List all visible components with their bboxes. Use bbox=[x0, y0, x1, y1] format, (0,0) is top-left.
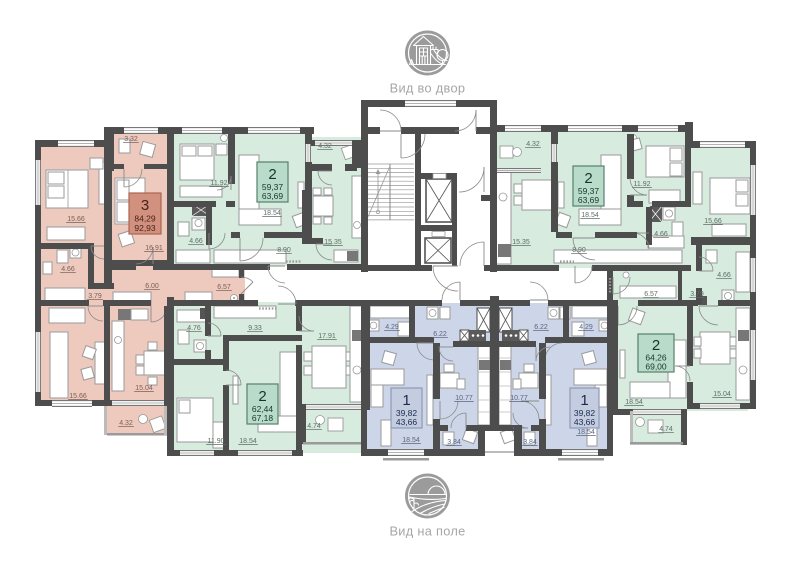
svg-text:11.90: 11.90 bbox=[208, 438, 225, 445]
svg-text:6.00: 6.00 bbox=[145, 283, 159, 290]
svg-text:15.35: 15.35 bbox=[324, 239, 342, 246]
svg-text:3.79: 3.79 bbox=[88, 293, 102, 300]
svg-text:43,66: 43,66 bbox=[396, 417, 418, 427]
svg-text:4.29: 4.29 bbox=[579, 324, 593, 331]
svg-text:4.66: 4.66 bbox=[654, 231, 668, 238]
svg-text:15.66: 15.66 bbox=[69, 393, 87, 400]
svg-text:4.66: 4.66 bbox=[189, 238, 203, 245]
svg-text:1: 1 bbox=[402, 392, 410, 409]
svg-text:92,93: 92,93 bbox=[134, 223, 156, 233]
svg-text:2: 2 bbox=[584, 170, 592, 187]
svg-text:3.84: 3.84 bbox=[447, 439, 461, 446]
svg-text:4.76: 4.76 bbox=[187, 325, 201, 332]
svg-text:4.29: 4.29 bbox=[385, 324, 399, 331]
svg-text:16.91: 16.91 bbox=[145, 245, 163, 252]
svg-text:10.77: 10.77 bbox=[510, 395, 528, 402]
svg-text:10.77: 10.77 bbox=[455, 395, 473, 402]
svg-text:15.04: 15.04 bbox=[135, 385, 153, 392]
svg-text:18.54: 18.54 bbox=[577, 429, 595, 436]
svg-text:43,66: 43,66 bbox=[574, 417, 596, 427]
svg-text:11.92: 11.92 bbox=[211, 180, 228, 187]
svg-text:3.79: 3.79 bbox=[690, 291, 704, 298]
svg-text:4.66: 4.66 bbox=[61, 266, 75, 273]
svg-text:63,69: 63,69 bbox=[262, 191, 284, 201]
svg-text:3: 3 bbox=[141, 197, 149, 214]
svg-text:8.90: 8.90 bbox=[277, 247, 291, 254]
svg-text:2: 2 bbox=[268, 166, 276, 183]
svg-text:4.74: 4.74 bbox=[659, 426, 673, 433]
svg-text:4.66: 4.66 bbox=[717, 272, 731, 279]
svg-text:18.54: 18.54 bbox=[263, 210, 281, 217]
svg-text:4.32: 4.32 bbox=[318, 143, 332, 150]
svg-text:18.54: 18.54 bbox=[625, 399, 643, 406]
svg-text:1: 1 bbox=[580, 392, 588, 409]
svg-text:69,00: 69,00 bbox=[645, 361, 667, 371]
svg-text:17.91: 17.91 bbox=[318, 333, 336, 340]
svg-text:6.57: 6.57 bbox=[217, 284, 231, 291]
svg-text:11.92: 11.92 bbox=[634, 181, 651, 188]
svg-text:Вид на поле: Вид на поле bbox=[389, 524, 465, 539]
svg-text:Вид во двор: Вид во двор bbox=[390, 81, 466, 96]
svg-text:4.74: 4.74 bbox=[307, 423, 321, 430]
svg-text:18.54: 18.54 bbox=[581, 212, 599, 219]
svg-text:15.04: 15.04 bbox=[713, 391, 731, 398]
svg-text:6.57: 6.57 bbox=[644, 291, 658, 298]
svg-text:3.32: 3.32 bbox=[124, 136, 138, 143]
svg-text:9.33: 9.33 bbox=[248, 325, 262, 332]
svg-text:2: 2 bbox=[258, 388, 266, 405]
svg-text:6.22: 6.22 bbox=[534, 324, 548, 331]
svg-text:4.32: 4.32 bbox=[526, 141, 540, 148]
svg-text:6.22: 6.22 bbox=[433, 331, 447, 338]
svg-text:4.32: 4.32 bbox=[119, 420, 133, 427]
svg-text:18.54: 18.54 bbox=[402, 437, 420, 444]
svg-text:3.84: 3.84 bbox=[523, 439, 537, 446]
svg-text:8.90: 8.90 bbox=[572, 247, 586, 254]
svg-text:15.66: 15.66 bbox=[67, 216, 85, 223]
svg-text:18.54: 18.54 bbox=[239, 438, 257, 445]
svg-text:15.66: 15.66 bbox=[704, 218, 722, 225]
svg-text:2: 2 bbox=[652, 337, 660, 354]
svg-text:67,18: 67,18 bbox=[252, 413, 274, 423]
svg-text:15.35: 15.35 bbox=[512, 239, 530, 246]
svg-text:63,69: 63,69 bbox=[578, 195, 600, 205]
